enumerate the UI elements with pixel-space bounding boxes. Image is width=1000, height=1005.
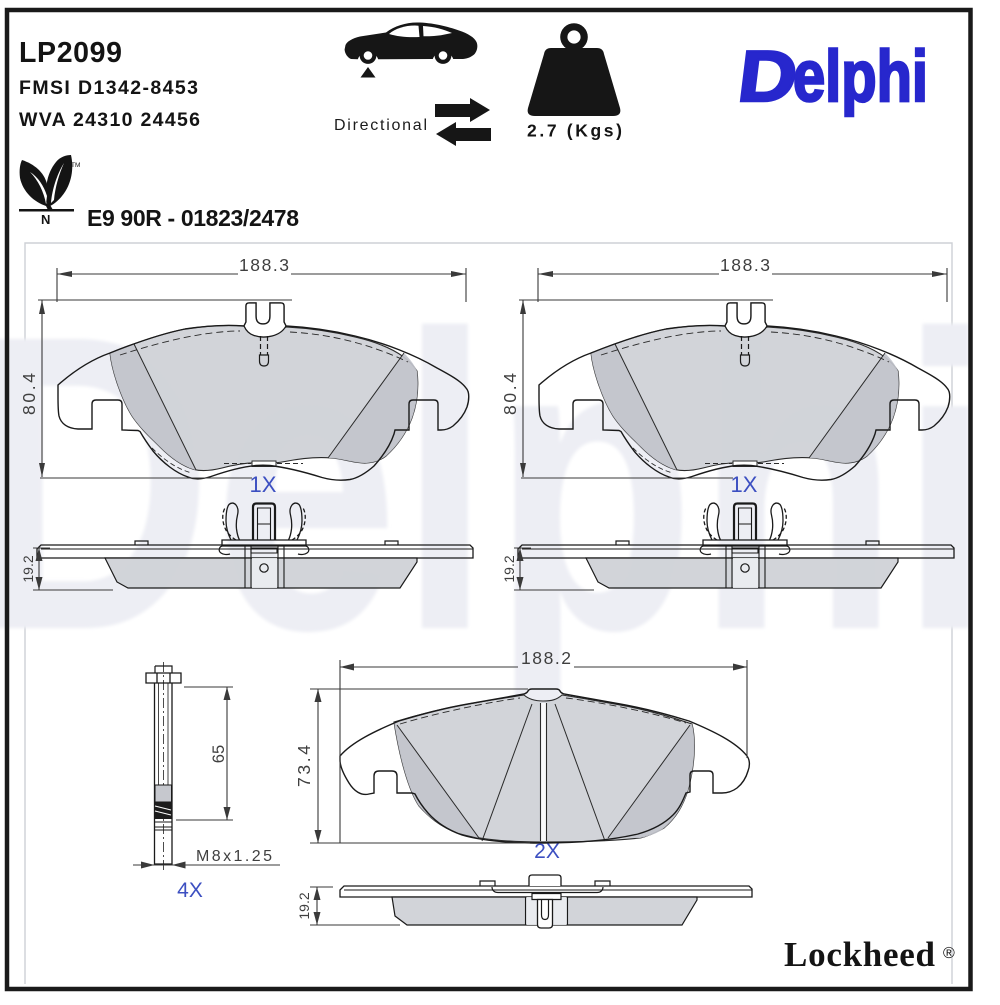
svg-text:®: ® <box>943 945 955 962</box>
svg-text:80.4: 80.4 <box>19 373 39 415</box>
svg-text:2.7 (Kgs): 2.7 (Kgs) <box>527 121 622 141</box>
svg-text:FMSI D1342-8453: FMSI D1342-8453 <box>19 77 198 99</box>
svg-text:65: 65 <box>210 745 228 763</box>
svg-text:N: N <box>41 212 50 227</box>
svg-text:LP2099: LP2099 <box>19 37 122 69</box>
svg-text:73.4: 73.4 <box>294 745 314 787</box>
svg-text:19.2: 19.2 <box>20 555 36 582</box>
svg-text:188.2: 188.2 <box>521 648 571 668</box>
svg-text:WVA 24310 24456: WVA 24310 24456 <box>19 109 200 131</box>
svg-text:1X: 1X <box>250 472 277 497</box>
svg-text:D: D <box>734 37 802 117</box>
svg-text:4X: 4X <box>177 879 203 902</box>
svg-text:E9 90R - 01823/2478: E9 90R - 01823/2478 <box>87 205 299 231</box>
svg-text:188.3: 188.3 <box>239 255 289 275</box>
svg-text:Lockheed: Lockheed <box>784 935 936 974</box>
svg-text:Directional: Directional <box>334 117 427 134</box>
svg-text:2X: 2X <box>534 840 560 863</box>
svg-text:19.2: 19.2 <box>296 892 312 919</box>
svg-text:elphi: elphi <box>793 37 928 117</box>
svg-text:Delphi: Delphi <box>0 249 992 720</box>
svg-text:TM: TM <box>71 162 80 169</box>
